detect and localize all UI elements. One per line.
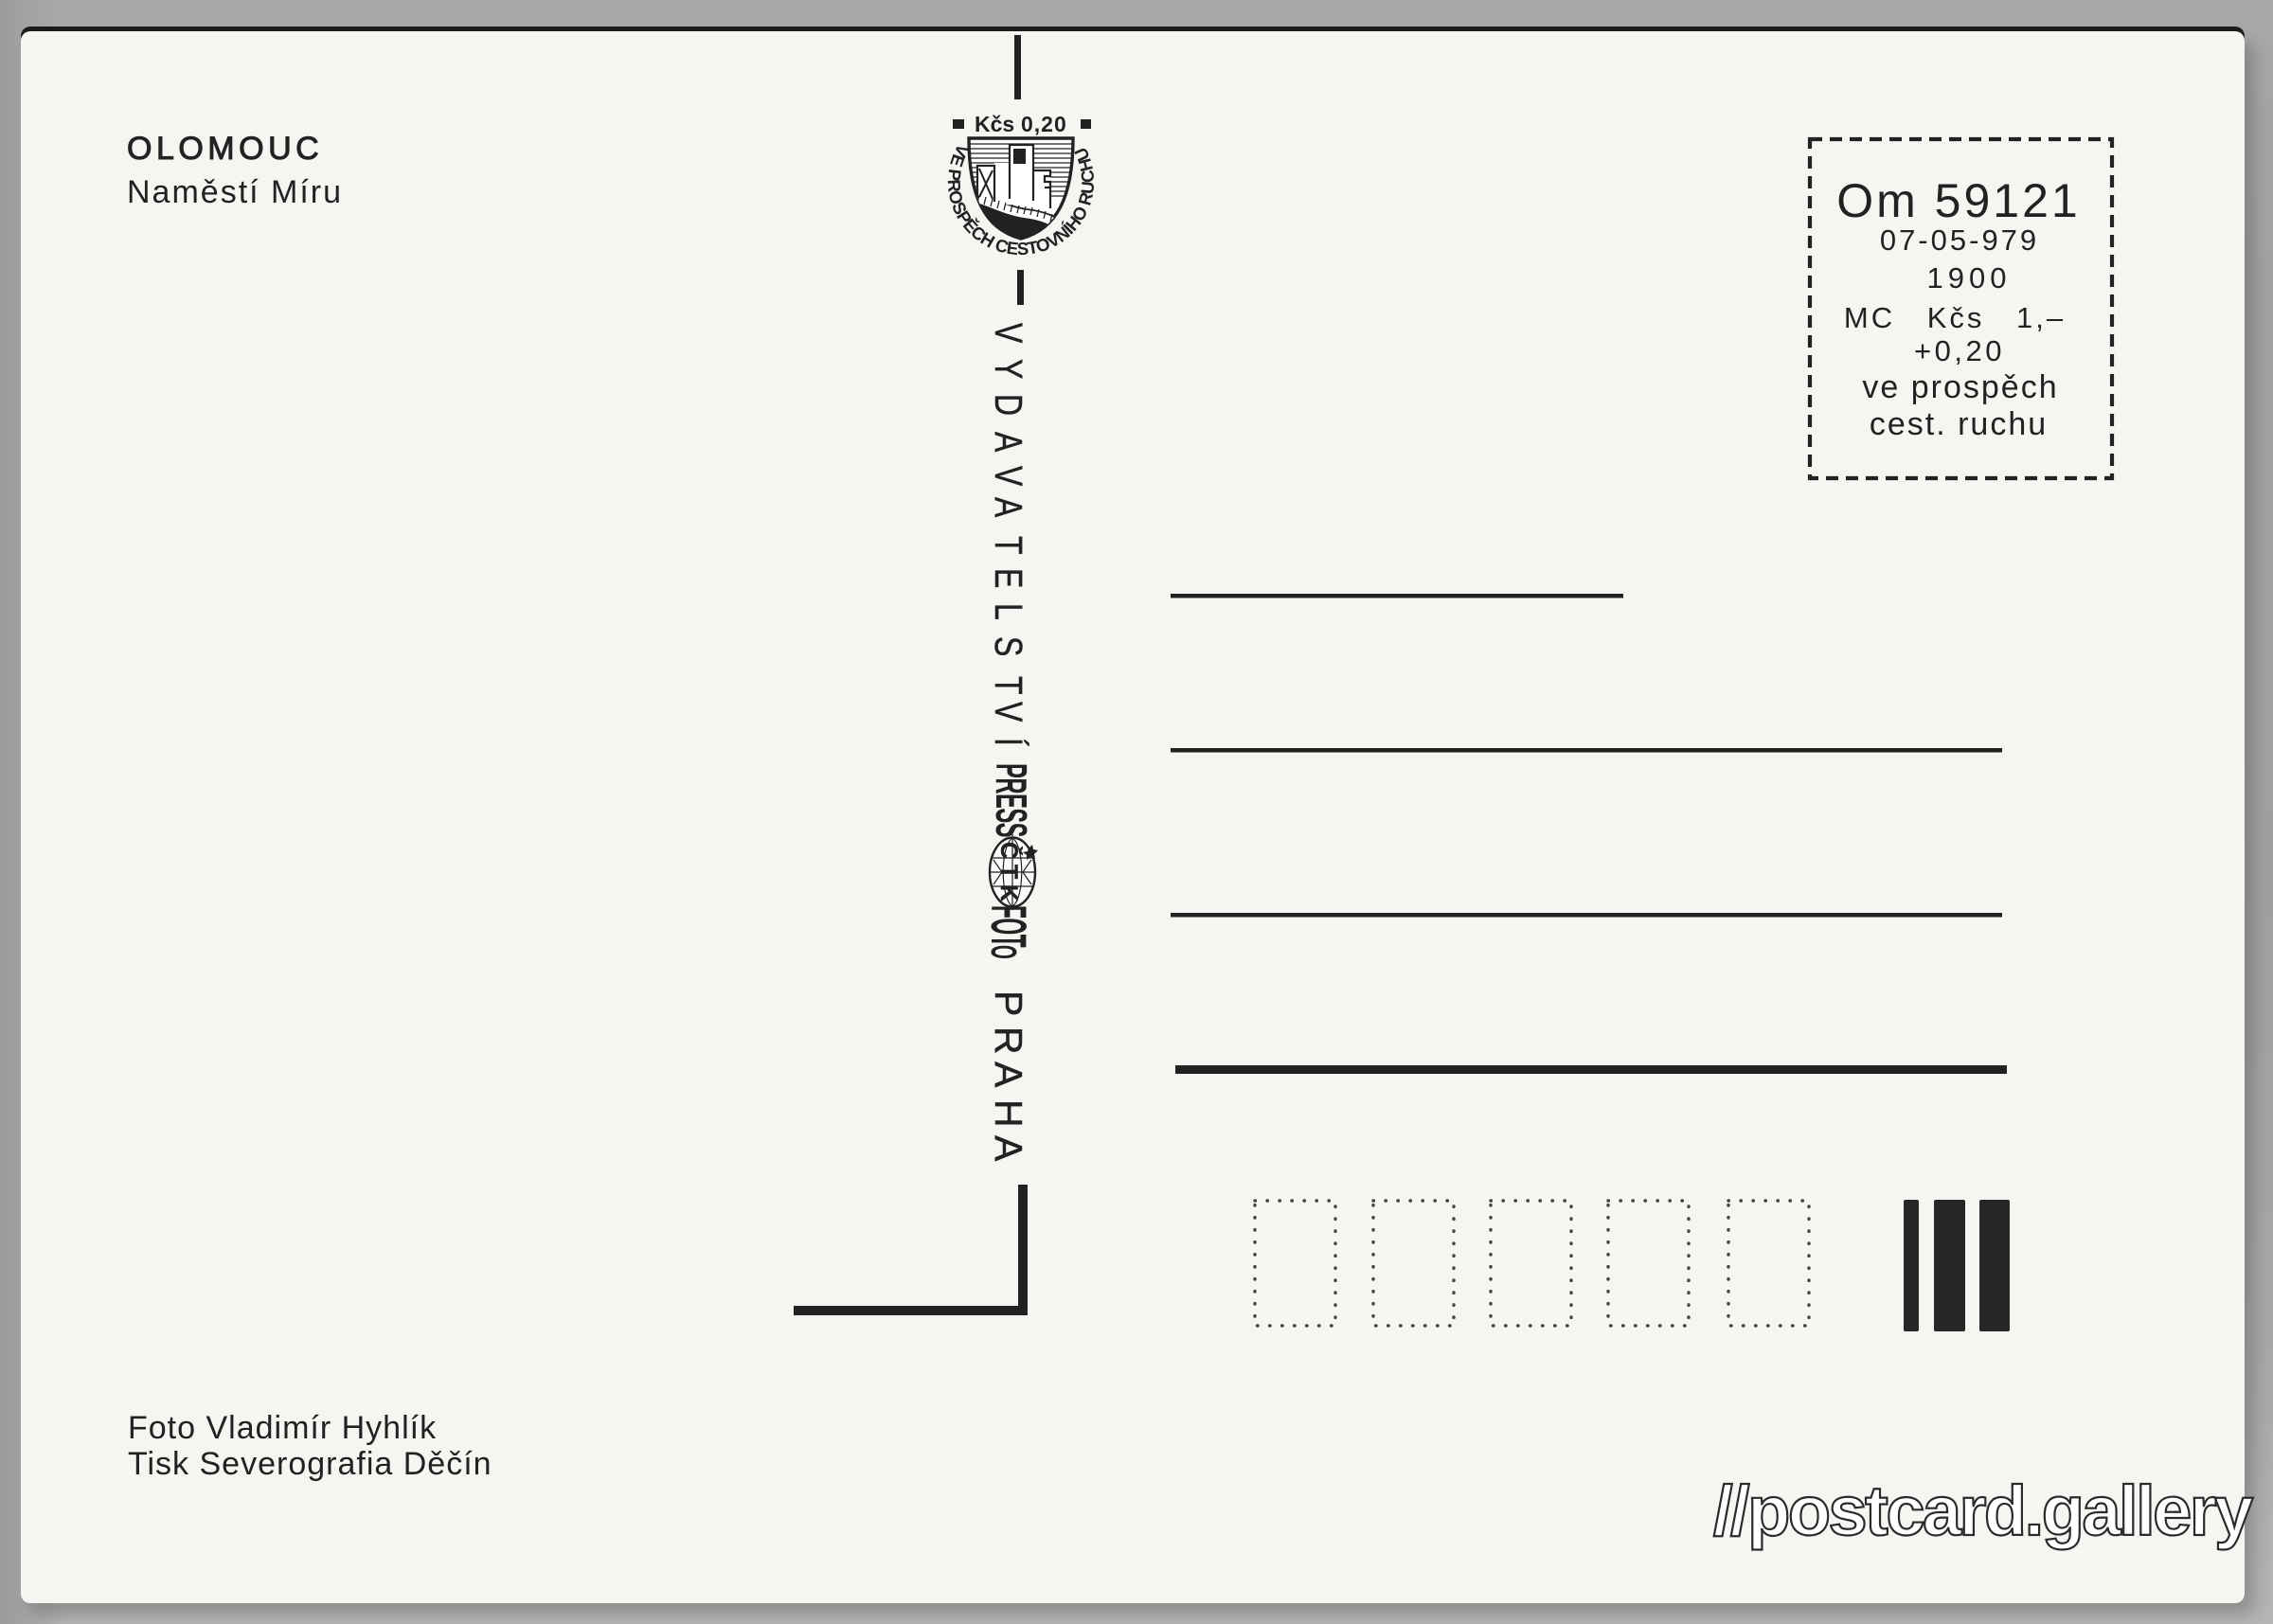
- svg-text:E: E: [987, 568, 1030, 588]
- svg-text:ve prospěch: ve prospěch: [1862, 369, 2058, 405]
- svg-text:H: H: [987, 1099, 1030, 1128]
- svg-text:FOT: FOT: [981, 905, 1038, 947]
- svg-text:T: T: [987, 676, 1030, 695]
- svg-text:K: K: [995, 884, 1022, 901]
- svg-text:P: P: [987, 990, 1030, 1016]
- svg-text:Om 59121: Om 59121: [1836, 174, 2080, 227]
- svg-text:Í: Í: [987, 738, 1030, 747]
- svg-text:Y: Y: [987, 359, 1030, 379]
- svg-text:T: T: [987, 536, 1030, 555]
- svg-text:R: R: [987, 1026, 1030, 1055]
- svg-text:L: L: [987, 603, 1030, 620]
- svg-text:V: V: [987, 702, 1030, 723]
- svg-text:S: S: [987, 636, 1030, 656]
- svg-text:A: A: [987, 1135, 1030, 1162]
- svg-text:PRESS: PRESS: [987, 763, 1036, 837]
- svg-text:V: V: [987, 466, 1030, 487]
- svg-text:Kčs: Kčs: [975, 112, 1014, 136]
- svg-text:A: A: [987, 1062, 1030, 1088]
- svg-text:T: T: [995, 865, 1022, 879]
- svg-text:D: D: [987, 394, 1030, 416]
- svg-text:A: A: [987, 497, 1030, 518]
- svg-text:Č: Č: [995, 842, 1024, 859]
- svg-text:MC Kčs 1,–: MC Kčs 1,–: [1844, 301, 2066, 334]
- svg-text:0,20: 0,20: [1021, 112, 1067, 136]
- svg-text:1900: 1900: [1927, 261, 2012, 294]
- svg-text:A: A: [987, 432, 1030, 453]
- svg-text:V: V: [987, 323, 1030, 344]
- svg-text:O: O: [983, 945, 1023, 959]
- svg-text:cest. ruchu: cest. ruchu: [1870, 406, 2048, 442]
- svg-text:07-05-979: 07-05-979: [1880, 223, 2039, 257]
- svg-text:+0,20: +0,20: [1914, 334, 2005, 367]
